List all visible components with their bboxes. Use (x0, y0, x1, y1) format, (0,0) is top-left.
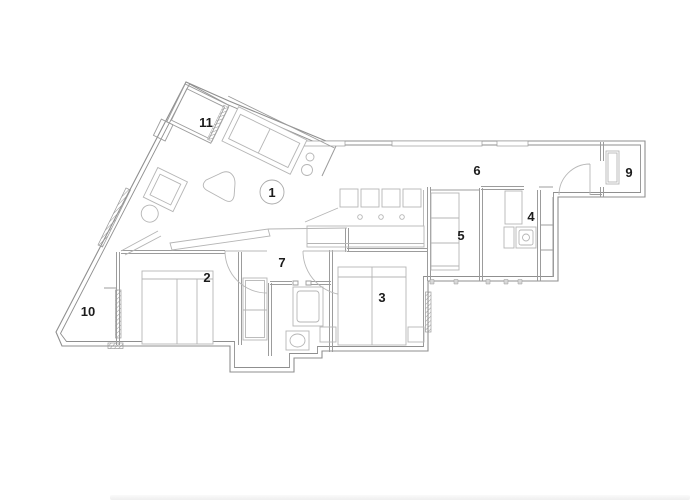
bed-room-2 (142, 271, 213, 344)
room-label-3: 3 (378, 290, 385, 305)
door-swings (225, 164, 590, 295)
kitchen (305, 189, 424, 247)
round-side-table (138, 202, 161, 225)
pantry-shelves-room-5 (431, 193, 459, 270)
cabinet (505, 191, 522, 224)
door-room-9 (559, 164, 590, 195)
page-bottom-edge (110, 495, 690, 500)
room-label-2: 2 (203, 270, 210, 285)
window-terrace-diagonal (98, 188, 131, 247)
toilet (286, 331, 309, 350)
shower (293, 287, 323, 326)
sofa (222, 107, 307, 174)
floor-plan-page: 1 2 3 4 5 6 7 9 10 11 (0, 0, 700, 500)
room-label-5: 5 (457, 228, 464, 243)
wardrobe-room-2 (243, 278, 267, 340)
room-label-1: 1 (268, 185, 275, 200)
side-tables-room-6 (302, 153, 315, 176)
room-label-9: 9 (625, 165, 632, 180)
coffee-table (201, 164, 243, 203)
nightstand-left (320, 327, 336, 342)
room-label-11: 11 (199, 115, 213, 130)
room-label-6: 6 (473, 163, 480, 178)
room-label-7: 7 (278, 255, 285, 270)
wall-mullion-ticks (430, 280, 522, 285)
window-room2-left (116, 290, 122, 338)
bed-room-3 (320, 267, 424, 345)
room-label-10: 10 (81, 304, 95, 319)
sink (504, 227, 514, 248)
room-9-furniture (606, 151, 619, 184)
door-bathroom-ticks (293, 281, 311, 285)
window-room3-right (426, 292, 432, 332)
room-label-4: 4 (527, 209, 535, 224)
nightstand-right (408, 327, 424, 342)
door-room-2 (225, 251, 267, 293)
floor-plan-drawing: 1 2 3 4 5 6 7 9 10 11 (0, 0, 700, 500)
window-room2-bottom (108, 343, 123, 349)
